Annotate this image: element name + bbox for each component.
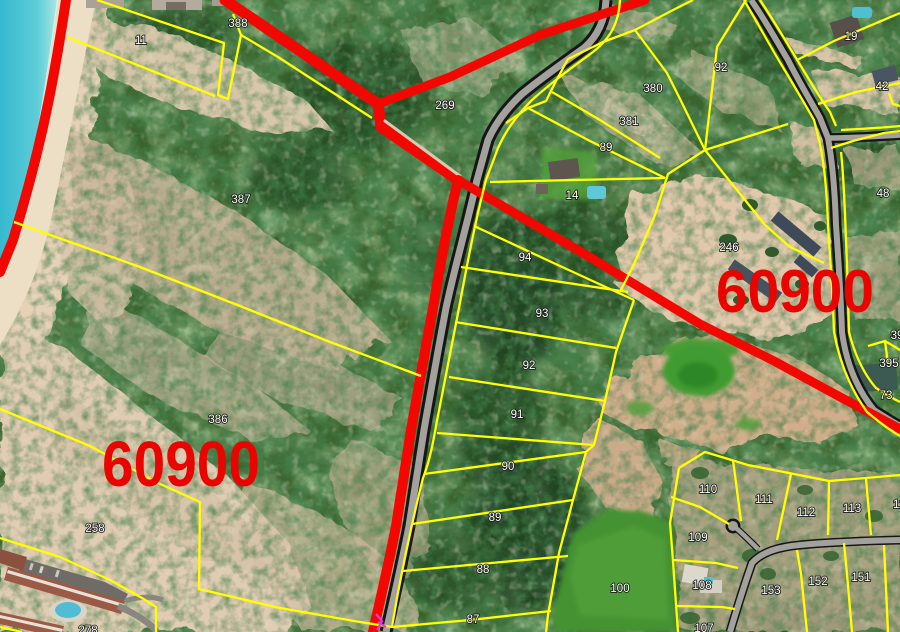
svg-text:111: 111 — [755, 494, 772, 506]
svg-text:73: 73 — [880, 390, 893, 402]
svg-text:11: 11 — [135, 35, 147, 47]
svg-text:93: 93 — [536, 308, 549, 320]
svg-text:60900: 60900 — [102, 428, 260, 500]
svg-text:19: 19 — [845, 31, 858, 43]
svg-text:48: 48 — [877, 188, 890, 200]
svg-text:112: 112 — [797, 507, 815, 519]
svg-text:258: 258 — [85, 523, 104, 535]
svg-text:39: 39 — [891, 330, 900, 342]
svg-text:108: 108 — [692, 580, 711, 592]
svg-text:113: 113 — [843, 503, 861, 515]
svg-text:94: 94 — [519, 252, 532, 264]
svg-text:60900: 60900 — [716, 258, 874, 325]
svg-text:246: 246 — [719, 242, 738, 254]
svg-text:388: 388 — [228, 18, 247, 30]
svg-text:42: 42 — [876, 81, 889, 93]
svg-text:151: 151 — [851, 572, 870, 584]
svg-text:14: 14 — [566, 190, 579, 202]
svg-text:153: 153 — [761, 585, 780, 597]
svg-text:92: 92 — [715, 62, 728, 74]
svg-text:92: 92 — [523, 360, 536, 372]
svg-text:395: 395 — [879, 358, 898, 370]
svg-text:87: 87 — [467, 614, 480, 626]
svg-text:110: 110 — [699, 484, 717, 496]
svg-text:386: 386 — [208, 414, 227, 426]
svg-text:90: 90 — [502, 461, 515, 473]
svg-text:387: 387 — [231, 194, 250, 206]
svg-text:278: 278 — [78, 625, 97, 632]
svg-text:89: 89 — [489, 512, 502, 524]
svg-text:88: 88 — [477, 564, 490, 576]
svg-text:381: 381 — [619, 116, 638, 128]
svg-text:107: 107 — [694, 623, 713, 632]
svg-text:11: 11 — [893, 499, 900, 511]
svg-text:109: 109 — [688, 532, 707, 544]
svg-text:152: 152 — [808, 576, 827, 588]
svg-text:100: 100 — [610, 583, 629, 595]
svg-text:91: 91 — [511, 409, 524, 421]
svg-text:380: 380 — [643, 83, 662, 95]
svg-text:89: 89 — [600, 142, 613, 154]
svg-text:269: 269 — [435, 100, 454, 112]
